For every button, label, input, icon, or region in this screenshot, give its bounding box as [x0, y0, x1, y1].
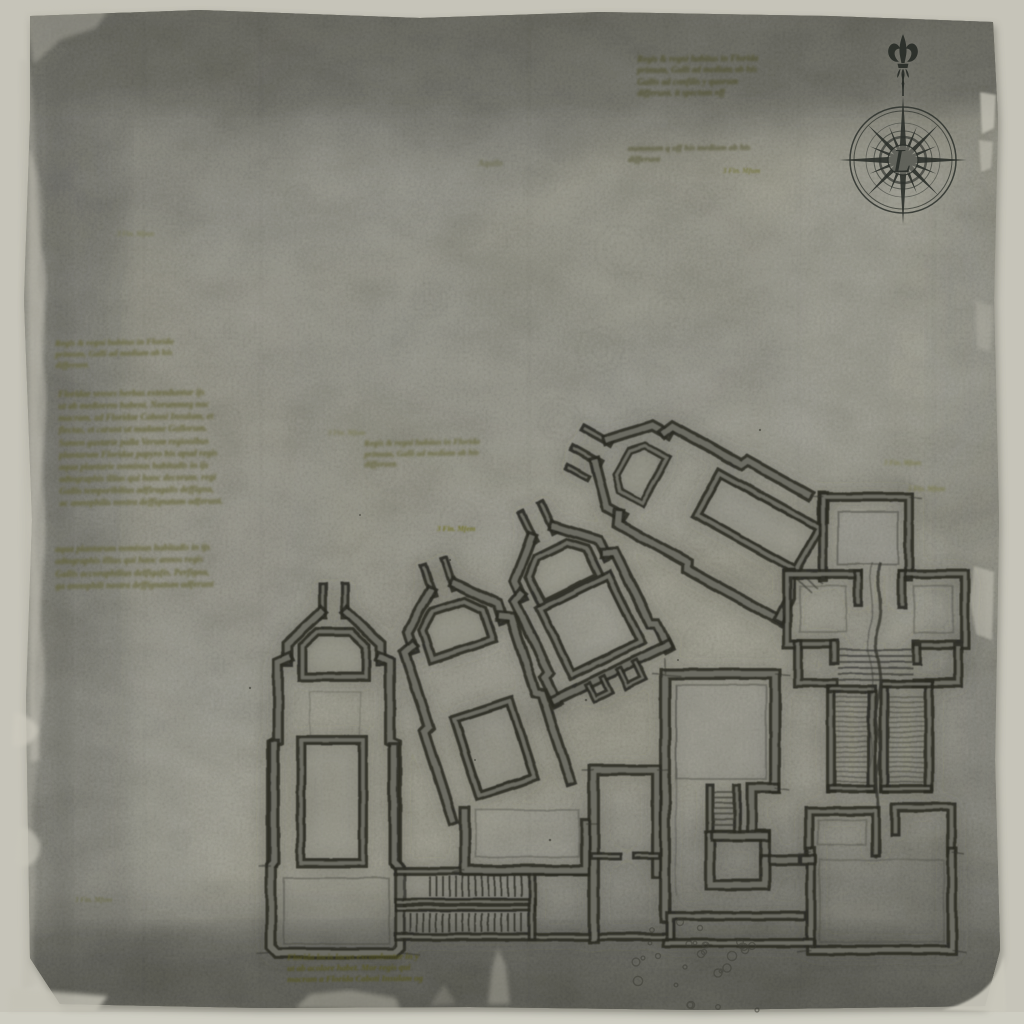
svg-text:L: L — [892, 143, 912, 180]
